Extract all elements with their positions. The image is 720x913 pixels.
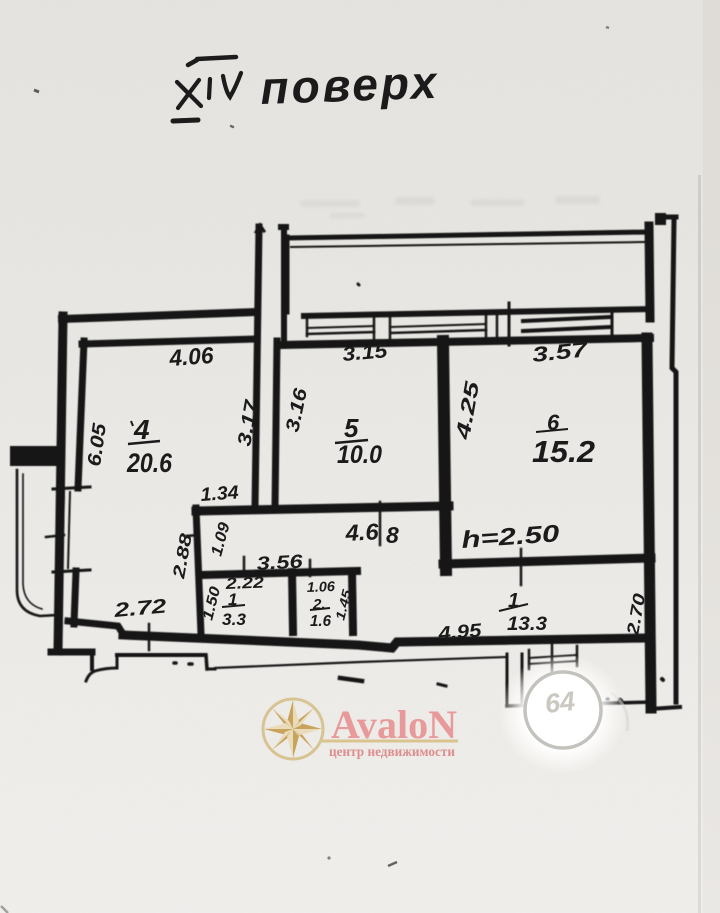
svg-text:2.72: 2.72	[112, 596, 167, 623]
svg-text:4: 4	[133, 414, 150, 445]
svg-text:1.34: 1.34	[200, 482, 240, 506]
svg-text:3.56: 3.56	[256, 552, 304, 575]
svg-text:10.0: 10.0	[337, 441, 382, 469]
svg-text:центр недвижимости: центр недвижимости	[329, 745, 455, 760]
svg-text:3.15: 3.15	[342, 340, 390, 366]
svg-text:3.3: 3.3	[222, 610, 247, 629]
svg-text:13.3: 13.3	[507, 614, 547, 635]
svg-text:15.2: 15.2	[532, 434, 595, 469]
svg-text:4.06: 4.06	[168, 342, 215, 371]
svg-text:AvaloN: AvaloN	[331, 702, 457, 747]
svg-text:поверх: поверх	[260, 56, 441, 114]
svg-text:8: 8	[386, 522, 399, 548]
svg-text:5: 5	[344, 413, 359, 443]
svg-text:4.95: 4.95	[436, 620, 482, 645]
svg-text:64: 64	[543, 686, 576, 719]
svg-text:1.6: 1.6	[310, 613, 331, 630]
svg-text:4.6: 4.6	[344, 518, 380, 546]
svg-text:1.06: 1.06	[307, 578, 336, 595]
svg-text:20.6: 20.6	[126, 448, 173, 478]
